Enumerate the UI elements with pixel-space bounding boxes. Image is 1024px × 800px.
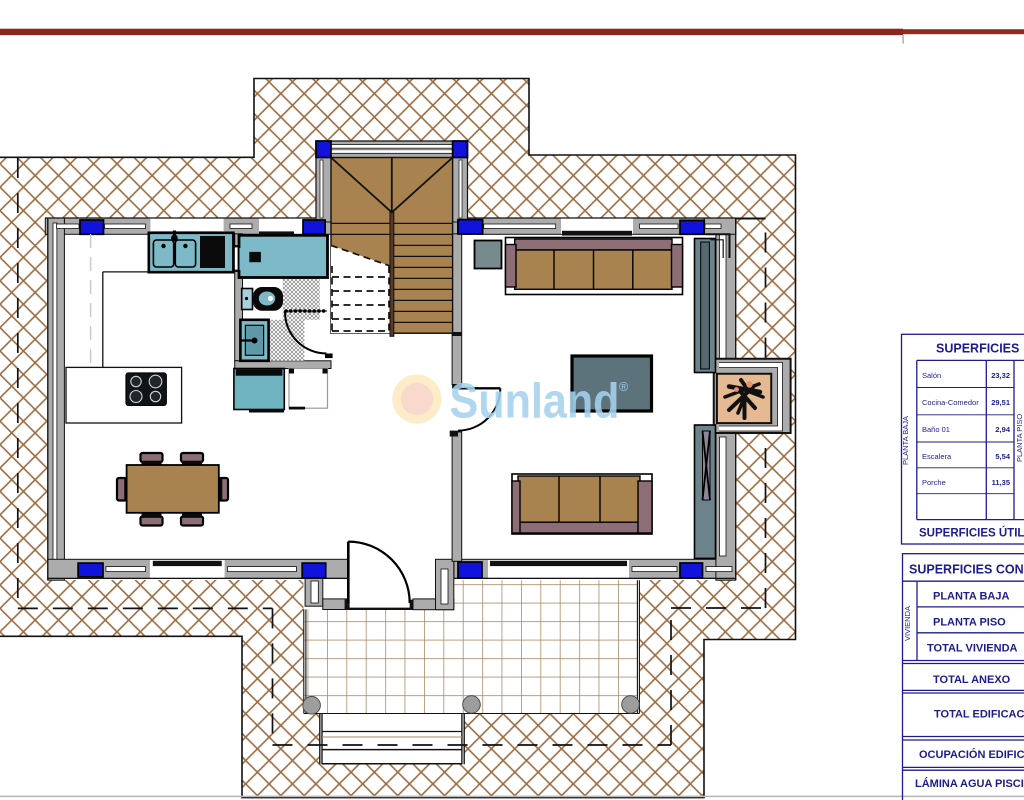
svg-text:Sunland: Sunland [450, 375, 620, 429]
svg-text:SUPERFICIES: SUPERFICIES [936, 342, 1019, 356]
svg-text:PLANTA BAJA: PLANTA BAJA [901, 416, 910, 465]
svg-text:®: ® [619, 380, 629, 394]
svg-text:TOTAL EDIFICACIÓ: TOTAL EDIFICACIÓ [934, 708, 1024, 721]
svg-text:29,51: 29,51 [991, 398, 1010, 407]
svg-text:23,32: 23,32 [991, 371, 1010, 380]
svg-text:TOTAL ANEXO: TOTAL ANEXO [933, 674, 1011, 686]
svg-text:LÁMINA AGUA PISCIN: LÁMINA AGUA PISCIN [915, 777, 1024, 790]
svg-text:Escalera: Escalera [922, 452, 952, 461]
svg-text:VIVIENDA: VIVIENDA [903, 606, 912, 641]
svg-text:Cocina-Comedor: Cocina-Comedor [922, 398, 979, 407]
svg-text:OCUPACIÓN EDIFICA: OCUPACIÓN EDIFICA [919, 748, 1024, 761]
svg-text:11,35: 11,35 [992, 478, 1010, 487]
svg-text:SUPERFICIES CONS: SUPERFICIES CONS [909, 563, 1024, 577]
svg-text:Porche: Porche [922, 478, 946, 487]
svg-text:Baño 01: Baño 01 [922, 425, 950, 434]
svg-text:PLANTA PISO: PLANTA PISO [1015, 414, 1024, 462]
svg-text:Salón: Salón [922, 371, 941, 380]
svg-text:TOTAL VIVIENDA: TOTAL VIVIENDA [927, 643, 1018, 655]
svg-text:5,54: 5,54 [995, 452, 1010, 461]
svg-text:SUPERFICIES ÚTIL TO: SUPERFICIES ÚTIL TO [919, 527, 1024, 540]
svg-text:PLANTA PISO: PLANTA PISO [933, 617, 1006, 629]
svg-text:PLANTA BAJA: PLANTA BAJA [933, 591, 1009, 603]
svg-text:2,94: 2,94 [995, 425, 1010, 434]
